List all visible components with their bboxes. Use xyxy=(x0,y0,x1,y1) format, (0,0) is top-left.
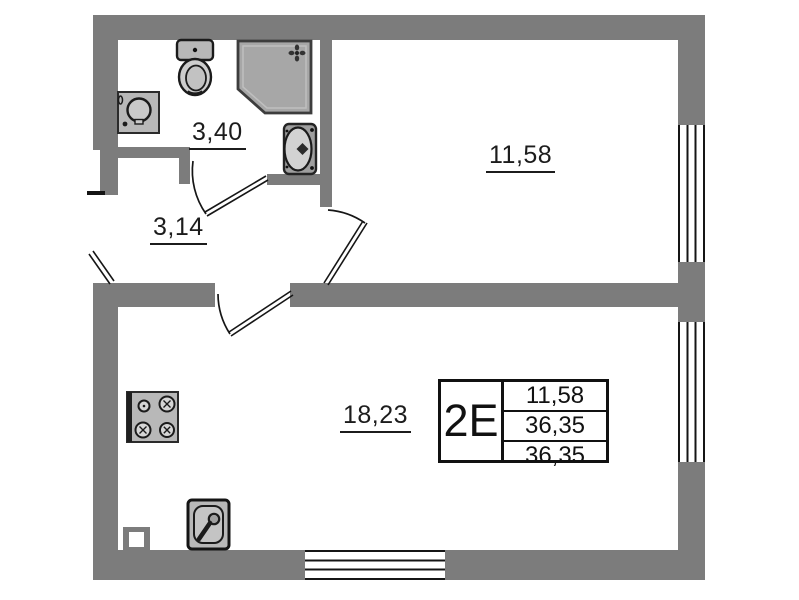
area-row-living: 11,58 xyxy=(504,382,606,410)
living-room-door-icon xyxy=(218,291,293,336)
bathroom-wall-right xyxy=(320,40,332,207)
room-label-hallway: 3,14 xyxy=(150,215,207,245)
bathroom-wall-sink xyxy=(267,174,320,185)
washing-machine-icon xyxy=(118,92,159,133)
window-living-right xyxy=(678,322,705,462)
entrance-door-icon xyxy=(89,251,114,284)
kitchen-sink-icon xyxy=(188,500,229,549)
window-bedroom xyxy=(678,125,705,262)
room-label-kitchen-living: 18,23 xyxy=(340,403,411,433)
wall-interior-right xyxy=(290,283,678,307)
window-living-bottom xyxy=(305,550,445,580)
apartment-info-table: 2E 11,58 36,35 36,35 xyxy=(438,379,609,463)
apartment-type-label: 2E xyxy=(441,382,504,460)
bedroom-door-icon xyxy=(324,210,367,285)
shower-icon xyxy=(238,41,311,113)
vent-shaft-hole xyxy=(129,532,144,547)
bathroom-door-jamb xyxy=(179,147,190,184)
floor-plan: 3,40 3,14 11,58 18,23 2E 11,58 36,35 36,… xyxy=(0,0,799,600)
wall-right-middle xyxy=(678,262,705,322)
shower-head xyxy=(289,45,306,62)
area-row-overall: 36,35 xyxy=(504,442,606,470)
stove-icon xyxy=(127,392,178,442)
wall-right-upper xyxy=(678,15,705,125)
bathroom-door-icon xyxy=(192,161,268,216)
wall-interior-left xyxy=(93,283,215,307)
washbasin-icon xyxy=(284,124,316,174)
wall-left-upper-step xyxy=(100,150,118,195)
room-label-bedroom: 11,58 xyxy=(486,143,555,173)
apartment-area-rows: 11,58 36,35 36,35 xyxy=(504,382,606,460)
wall-bottom-left xyxy=(93,550,305,580)
entry-wall-end-cap xyxy=(87,191,105,195)
room-label-bathroom: 3,40 xyxy=(189,120,246,150)
area-row-total: 36,35 xyxy=(504,410,606,442)
wall-top xyxy=(93,15,705,40)
wall-bottom-right xyxy=(445,550,705,580)
wall-left-lower xyxy=(93,283,118,580)
wall-right-lower xyxy=(678,462,705,580)
wall-left-upper xyxy=(93,15,118,150)
toilet-icon xyxy=(177,40,213,95)
